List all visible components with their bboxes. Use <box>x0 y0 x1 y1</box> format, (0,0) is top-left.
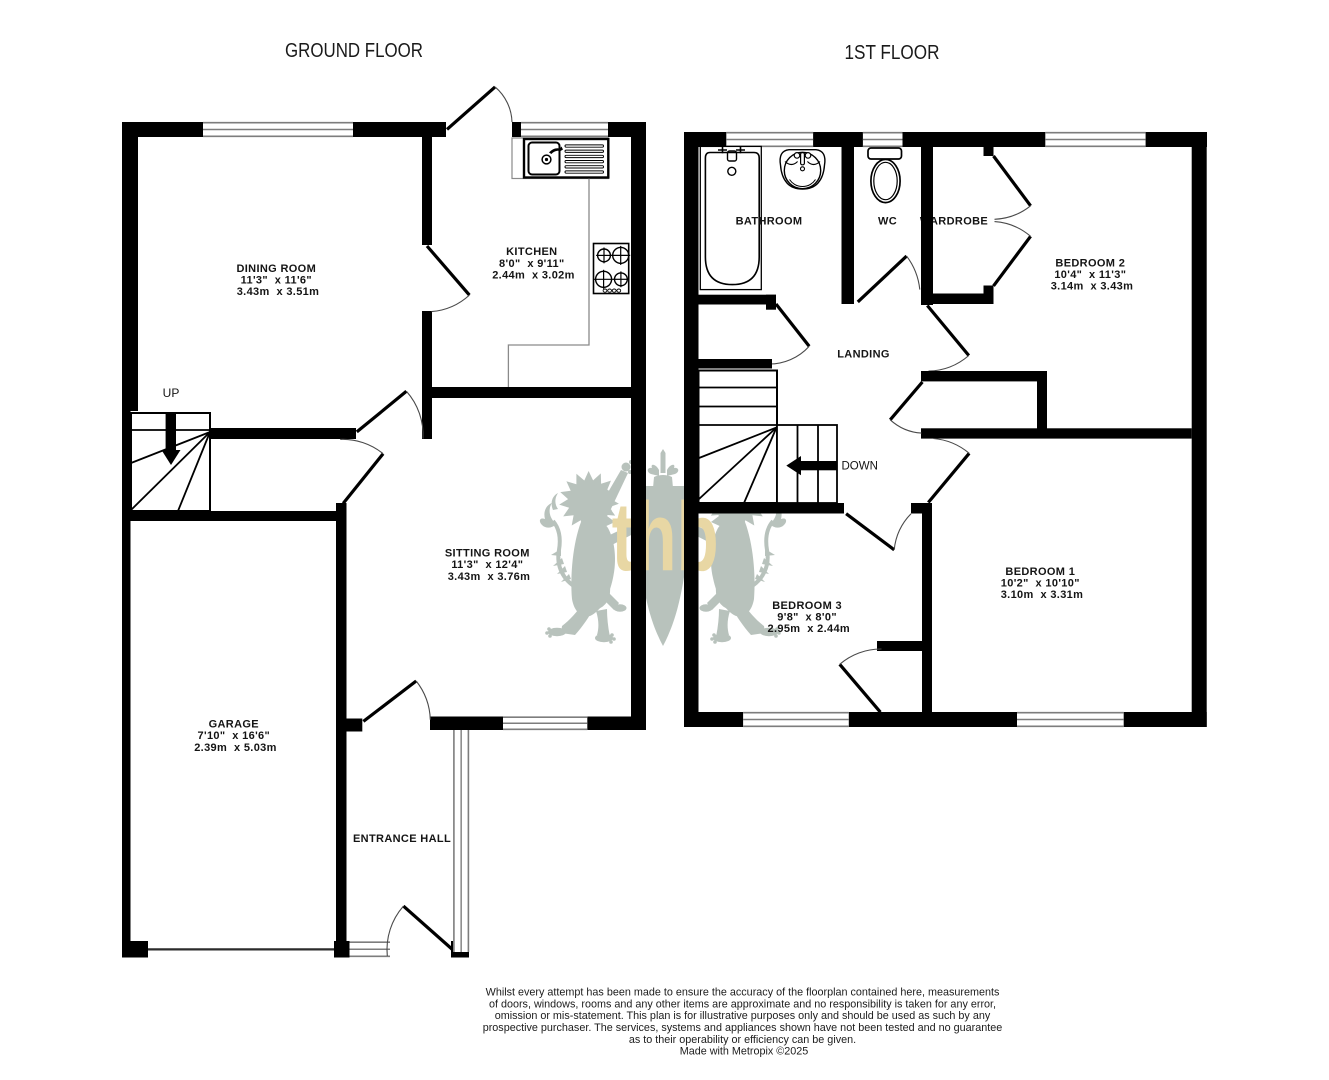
svg-text:ENTRANCE HALL: ENTRANCE HALL <box>353 833 451 845</box>
svg-text:DOWN: DOWN <box>842 461 878 473</box>
svg-text:BATHROOM: BATHROOM <box>736 215 803 227</box>
svg-text:SITTING ROOM 11'3" x 12'4" 3.: SITTING ROOM 11'3" x 12'4" 3.43m x 3.76m <box>445 548 533 583</box>
svg-text:BEDROOM 1 10'2" x 10'10" 3.10: BEDROOM 1 10'2" x 10'10" 3.10m x 3.31m <box>1001 566 1084 601</box>
svg-text:BEDROOM 2 10'4" x 11'3" 3.14m: BEDROOM 2 10'4" x 11'3" 3.14m x 3.43m <box>1051 257 1134 292</box>
svg-text:WC: WC <box>878 215 897 227</box>
svg-text:GROUND FLOOR: GROUND FLOOR <box>285 40 423 62</box>
svg-text:BEDROOM 3 9'8" x 8'0" 2.95m: BEDROOM 3 9'8" x 8'0" 2.95m x 2.44m <box>768 600 851 635</box>
svg-text:1ST FLOOR: 1ST FLOOR <box>845 42 940 64</box>
svg-text:UP: UP <box>163 386 180 400</box>
svg-text:LANDING: LANDING <box>837 348 890 360</box>
svg-text:DINING ROOM 11'3" x 11'6" 3.4: DINING ROOM 11'3" x 11'6" 3.43m x 3.51m <box>236 263 319 298</box>
